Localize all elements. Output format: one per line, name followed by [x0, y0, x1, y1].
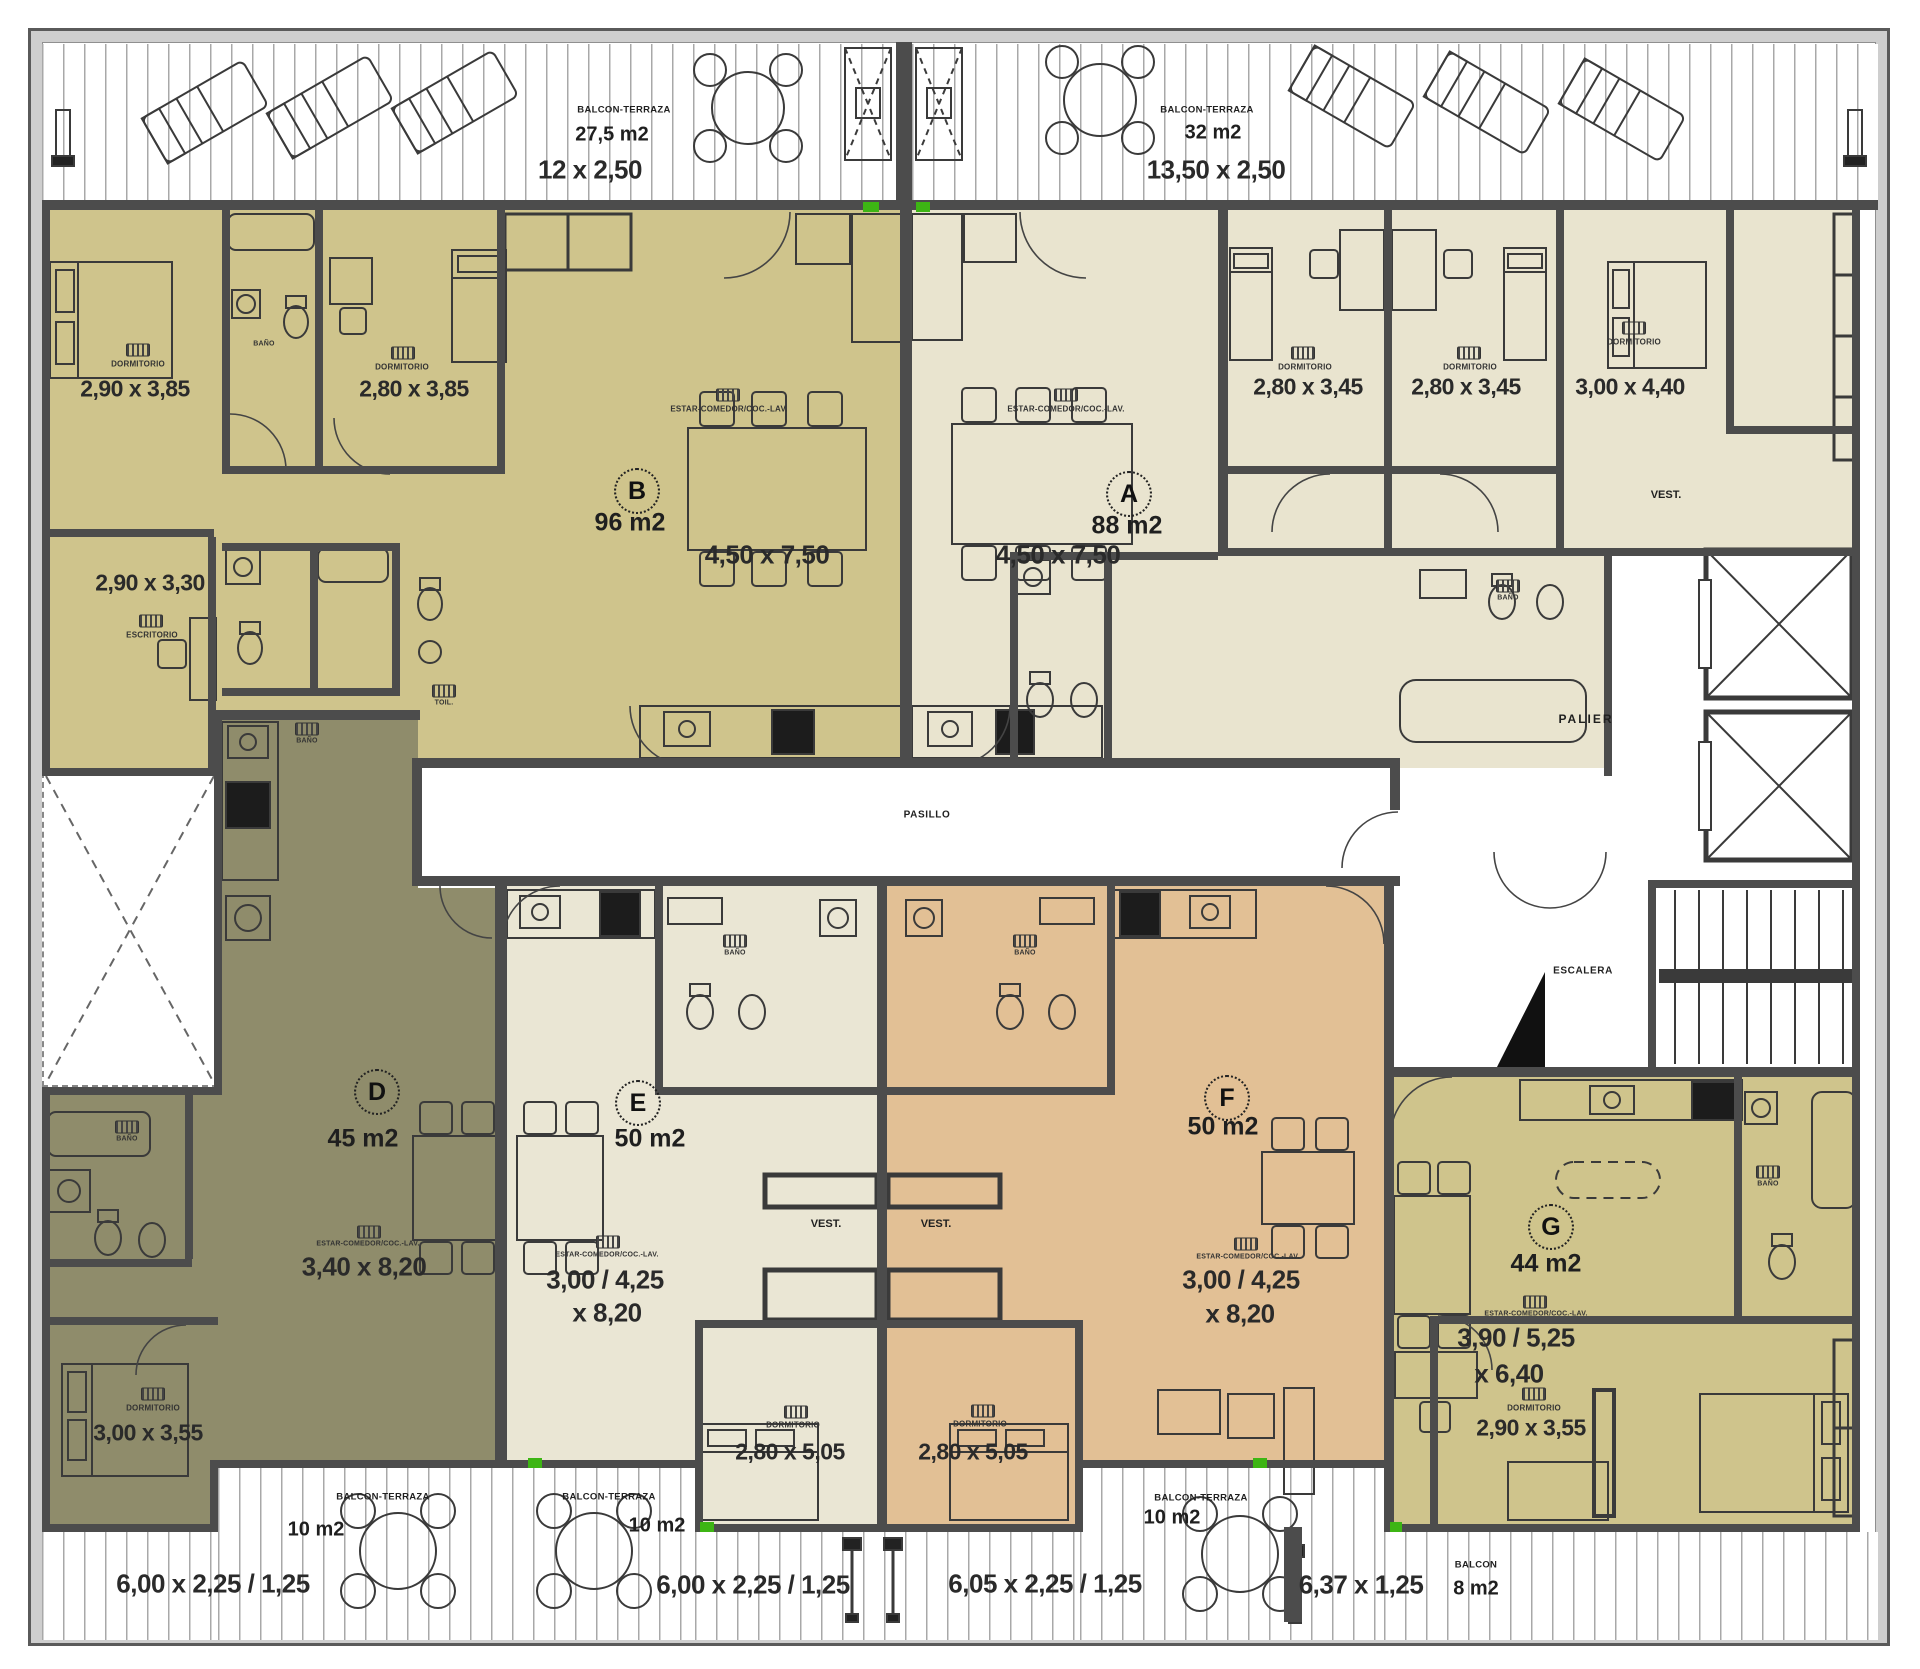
threshold-marker: [863, 202, 879, 212]
wall: [1390, 768, 1400, 810]
unit-b-escritorio-name: ESCRITORIO: [126, 631, 178, 640]
unit-d-badge: D: [354, 1069, 400, 1115]
room-tag-icon: [432, 685, 456, 698]
bottom-balcony-left-dim: 6,00 x 2,25 / 1,25: [116, 1569, 309, 1600]
patio-table-icon: [537, 1494, 651, 1608]
bottom-balcony-mid-title: BALCON-TERRAZA: [562, 1492, 655, 1503]
unit-a-dorm1-dim: 2,80 x 3,45: [1253, 374, 1363, 401]
unit-e-living-name: ESTAR-COMEDOR/COC.-LAV.: [555, 1252, 658, 1259]
unit-a-badge: A: [1106, 471, 1152, 517]
room-tag-icon: [141, 1388, 165, 1401]
threshold-marker: [916, 202, 930, 212]
lounger-icon: [142, 60, 268, 163]
kitchen-counter-icon: [222, 722, 278, 940]
wall: [1218, 200, 1228, 556]
wall: [497, 208, 505, 474]
unit-e-vest-label: VEST.: [811, 1218, 842, 1230]
lounger-icon: [392, 50, 518, 153]
bottom-balcony-mid-dim: 6,00 x 2,25 / 1,25: [656, 1570, 849, 1601]
room-tag-icon: [139, 615, 163, 628]
unit-a-vest-label: VEST.: [1651, 489, 1682, 501]
wall: [1107, 884, 1115, 1087]
wall: [1384, 876, 1394, 1532]
bottom-balcony-left-title: BALCON-TERRAZA: [336, 1492, 429, 1503]
bed-icon: [1608, 262, 1706, 368]
wall: [222, 208, 230, 474]
room-tag-icon: [1756, 1166, 1780, 1179]
unit-a-dorm2-name: DORMITORIO: [1443, 363, 1497, 372]
unit-b-dorm1-name: DORMITORIO: [111, 360, 165, 369]
floor-plan: BALCON-TERRAZA 27,5 m2 12 x 2,50 BALCON-…: [0, 0, 1920, 1669]
balcon-g-area: 8 m2: [1453, 1578, 1499, 1601]
unit-e-dorm-dim: 2,80 x 5,05: [735, 1439, 845, 1466]
wall: [695, 1320, 703, 1532]
room-tag-icon: [391, 347, 415, 360]
unit-g-dorm-dim: 2,90 x 3,55: [1476, 1415, 1586, 1442]
threshold-marker: [1253, 1458, 1267, 1468]
threshold-marker: [700, 1522, 714, 1532]
unit-d-dorm-name: DORMITORIO: [126, 1404, 180, 1413]
wall: [1734, 1075, 1742, 1316]
desk-icon: [330, 258, 372, 334]
wall: [900, 200, 912, 768]
top-balcony-left-area: 27,5 m2: [575, 124, 648, 147]
unit-b-bano-name: BAÑO: [253, 341, 274, 348]
wall: [42, 1317, 218, 1325]
dining-table-icon: [517, 1102, 603, 1274]
wall: [1852, 200, 1860, 1524]
unit-a-area: 88 m2: [1092, 512, 1163, 541]
room-tag-icon: [357, 1226, 381, 1239]
threshold-marker: [1390, 1522, 1402, 1532]
unit-a-dorm3-dim: 3,00 x 4,40: [1575, 374, 1685, 401]
room-tag-icon: [596, 1236, 620, 1249]
room-tag-icon: [295, 723, 319, 736]
sofa-icon: [1158, 1388, 1314, 1494]
unit-f-dorm-name: DORMITORIO: [953, 1420, 1007, 1429]
room-tag-icon: [115, 1121, 139, 1134]
wall: [1726, 426, 1860, 434]
wall: [695, 1320, 1080, 1328]
room-tag-icon: [126, 344, 150, 357]
unit-a-dorm2-dim: 2,80 x 3,45: [1411, 374, 1521, 401]
wall: [42, 1259, 192, 1267]
unit-g-living-dim2: x 6,40: [1474, 1359, 1543, 1390]
unit-b-toil-name: TOIL.: [435, 700, 454, 707]
unit-d-bano-name: BAÑO: [116, 1136, 137, 1143]
wall: [1218, 548, 1860, 556]
unit-g-dorm-name: DORMITORIO: [1507, 1404, 1561, 1413]
unit-e-badge: E: [615, 1080, 661, 1126]
wall: [222, 466, 505, 474]
wall: [495, 876, 507, 1468]
dining-table-icon: [413, 1102, 499, 1274]
wall: [1080, 1460, 1384, 1468]
room-tag-icon: [971, 1405, 995, 1418]
bathroom-fixtures-icon: [668, 898, 856, 1029]
top-balcony-right-dim: 13,50 x 2,50: [1147, 155, 1286, 186]
unit-b-dorm1-dim: 2,90 x 3,85: [80, 376, 190, 403]
wall: [695, 1524, 1080, 1532]
wall: [214, 710, 420, 720]
closet-icon: [1594, 1390, 1614, 1516]
wall: [1604, 556, 1612, 776]
unit-b-living-dim: 4,50 x 7,50: [705, 540, 830, 571]
unit-f-living-dim2: x 8,20: [1205, 1299, 1274, 1330]
top-balcony-right-area: 32 m2: [1185, 122, 1242, 145]
wall: [315, 208, 323, 474]
unit-b-living-name: ESTAR-COMEDOR/COC.-LAV.: [670, 405, 787, 414]
wall: [185, 1095, 193, 1259]
unit-d-living-dim: 3,40 x 8,20: [302, 1252, 427, 1283]
unit-a-dorm3-name: DORMITORIO: [1607, 338, 1661, 347]
lounger-icon: [267, 55, 393, 158]
bathroom-fixtures-icon: [1016, 560, 1097, 717]
stairs-icon: [1660, 890, 1856, 1064]
unit-f-bano-name: BAÑO: [1014, 950, 1035, 957]
wall: [218, 1460, 503, 1468]
unit-e-bano-name: BAÑO: [724, 950, 745, 957]
unit-e-area: 50 m2: [615, 1125, 686, 1154]
room-tag-icon: [784, 1406, 808, 1419]
wall: [1010, 552, 1018, 768]
wall: [412, 876, 1400, 886]
wall: [1075, 1320, 1083, 1532]
room-tag-icon: [1523, 1296, 1547, 1309]
wall: [42, 200, 50, 775]
pasillo-label: PASILLO: [904, 810, 951, 821]
wall: [42, 1087, 218, 1095]
stairs-ramp-icon: [1497, 972, 1545, 1067]
unit-a-bano-name: BAÑO: [1497, 595, 1518, 602]
lounger-icon: [1424, 51, 1550, 154]
bed-icon: [1230, 248, 1272, 360]
unit-b-escritorio-dim: 2,90 x 3,30: [95, 570, 205, 597]
unit-g-badge: G: [1528, 1204, 1574, 1250]
bottom-balcony-mid-area: 10 m2: [629, 1515, 686, 1538]
unit-e-living-dim2: x 8,20: [572, 1298, 641, 1329]
unit-a-dorm1-name: DORMITORIO: [1278, 363, 1332, 372]
wall: [222, 688, 392, 696]
unit-d-living-name: ESTAR-COMEDOR/COC.-LAV.: [316, 1241, 419, 1248]
wall: [392, 543, 400, 696]
bed-icon: [1504, 248, 1546, 360]
wall: [896, 42, 912, 200]
room-tag-icon: [723, 935, 747, 948]
balcony-post-icon: [884, 1538, 902, 1622]
wall: [1390, 1067, 1860, 1077]
room-tag-icon: [1054, 389, 1078, 402]
unit-f-living-dim1: 3,00 / 4,25: [1182, 1265, 1299, 1296]
bottom-balcony-right-title: BALCON-TERRAZA: [1154, 1493, 1247, 1504]
unit-f-vest-label: VEST.: [921, 1218, 952, 1230]
unit-a-living-name: ESTAR-COMEDOR/COC.-LAV.: [1007, 405, 1124, 414]
wall: [1556, 200, 1564, 550]
unit-b-area: 96 m2: [595, 509, 666, 538]
unit-e-living-dim1: 3,00 / 4,25: [546, 1265, 663, 1296]
kitchen-counter-icon: [1520, 1080, 1742, 1120]
unit-g-bano-name: BAÑO: [1757, 1181, 1778, 1188]
room-tag-icon: [1457, 347, 1481, 360]
palier-label: PALIER: [1558, 712, 1613, 726]
wall: [42, 1524, 218, 1532]
unit-d-area: 45 m2: [328, 1125, 399, 1154]
unit-b-dorm2-dim: 2,80 x 3,85: [359, 376, 469, 403]
patio-table-icon: [1046, 46, 1154, 154]
unit-g-living-dim1: 3,90 / 5,25: [1457, 1323, 1574, 1354]
unit-f-area: 50 m2: [1188, 1113, 1259, 1142]
kitchen-counter-icon: [507, 890, 655, 938]
unit-f-living-name: ESTAR-COMEDOR/COC.-LAV.: [1196, 1254, 1299, 1261]
unit-g-living-name: ESTAR-COMEDOR/COC.-LAV.: [1484, 1311, 1587, 1318]
wall: [1384, 200, 1392, 550]
patio-table-icon: [694, 54, 802, 162]
unit-a-living-dim: 4,50 x 7,50: [996, 540, 1121, 571]
room-tag-icon: [1496, 580, 1520, 593]
wall: [1430, 1316, 1438, 1524]
wall: [655, 884, 663, 1087]
wall: [1648, 880, 1656, 1067]
bottom-balcony-right-dim: 6,05 x 2,25 / 1,25: [948, 1569, 1141, 1600]
wall: [1726, 200, 1734, 430]
wall: [310, 543, 318, 696]
wall: [222, 543, 392, 551]
room-tag-icon: [1234, 1238, 1258, 1251]
room-tag-icon: [1622, 322, 1646, 335]
wall: [877, 876, 887, 1532]
wall: [42, 529, 214, 537]
top-balcony-left-title: BALCON-TERRAZA: [577, 105, 670, 116]
bathroom-fixtures-icon: [906, 898, 1094, 1029]
lounger-icon: [1289, 45, 1415, 148]
wall: [1104, 552, 1112, 768]
sofa-icon: [912, 214, 1016, 340]
room-tag-icon: [1522, 1388, 1546, 1401]
desk-icon: [1392, 230, 1472, 310]
wall: [42, 768, 218, 776]
top-balcony-right-title: BALCON-TERRAZA: [1160, 105, 1253, 116]
bottom-balcony-g-dim: 6,37 x 1,25: [1299, 1570, 1424, 1601]
top-balcony-left-dim: 12 x 2,50: [538, 155, 642, 186]
patio-table-icon: [341, 1494, 455, 1608]
wall: [42, 1087, 50, 1524]
threshold-marker: [528, 1458, 542, 1468]
kitchen-counter-icon: [640, 706, 902, 758]
unit-e-dorm-name: DORMITORIO: [766, 1421, 820, 1430]
lounger-icon: [1559, 58, 1685, 161]
bathroom-fixtures-icon: [48, 1112, 165, 1257]
dining-table-icon: [1262, 1118, 1354, 1258]
bathroom-fixtures-icon: [226, 548, 388, 664]
desk-icon: [1310, 230, 1384, 310]
unit-g-area: 44 m2: [1511, 1250, 1582, 1279]
wall: [214, 710, 222, 1095]
unit-d-dorm-dim: 3,00 x 3,55: [93, 1420, 203, 1447]
balcon-g-title: BALCON: [1455, 1560, 1497, 1571]
kitchen-counter-icon: [912, 706, 1102, 758]
escalera-label: ESCALERA: [1553, 966, 1613, 977]
unit-b-badge: B: [614, 468, 660, 514]
sofa-icon: [796, 214, 904, 342]
unit-b-dorm2-name: DORMITORIO: [375, 363, 429, 372]
bed-icon: [1700, 1394, 1848, 1512]
wall: [210, 1460, 218, 1532]
bottom-balcony-left-area: 10 m2: [288, 1519, 345, 1542]
unit-f-dorm-dim: 2,80 x 5,05: [918, 1439, 1028, 1466]
closet-icon: [505, 214, 631, 270]
kitchen-counter-icon: [1108, 890, 1256, 938]
room-tag-icon: [1013, 935, 1037, 948]
bathroom-fixtures-icon: [418, 578, 442, 663]
room-tag-icon: [716, 389, 740, 402]
wall: [412, 758, 422, 886]
room-tag-icon: [1291, 347, 1315, 360]
wall: [1648, 880, 1854, 888]
unit-b-bano2-name: BAÑO: [296, 738, 317, 745]
bathroom-fixtures-icon: [228, 214, 314, 338]
bottom-balcony-right-area: 10 m2: [1144, 1507, 1201, 1530]
wall: [1390, 1524, 1860, 1532]
